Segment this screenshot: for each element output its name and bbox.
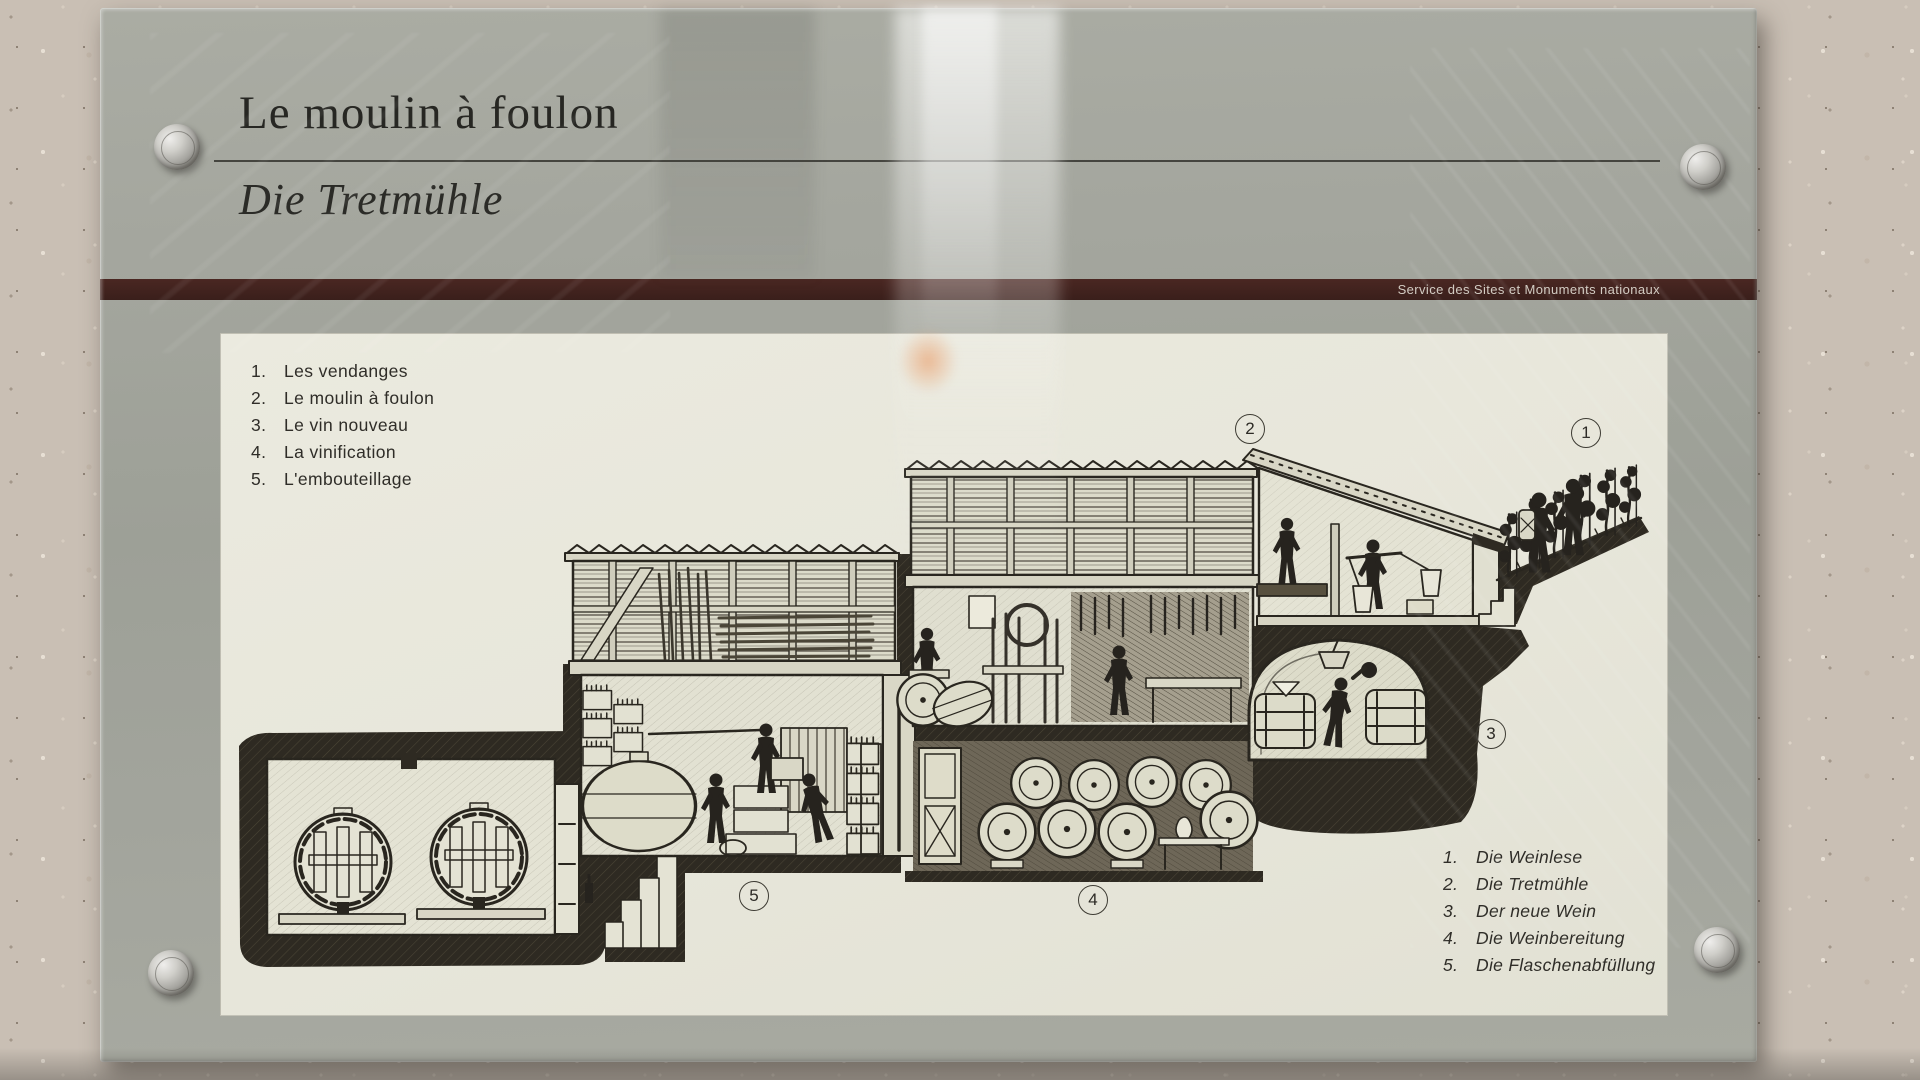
diagram-marker-5: 5	[739, 881, 769, 911]
bottling-building	[565, 545, 915, 856]
standoff-bolt-bottom-right	[1694, 927, 1740, 973]
diagram-marker-2: 2	[1235, 414, 1265, 444]
legend-item: 1.Les vendanges	[251, 360, 434, 382]
legend-item: 5.L'embouteillage	[251, 468, 434, 490]
legend-item: 2.Le moulin à foulon	[251, 387, 434, 409]
legend-item: 1.Die Weinlese	[1443, 846, 1655, 868]
legend-item: 2.Die Tretmühle	[1443, 873, 1655, 895]
legend-french: 1.Les vendanges 2.Le moulin à foulon 3.L…	[251, 360, 434, 495]
issuer-caption: Service des Sites et Monuments nationaux	[1398, 282, 1757, 297]
central-building	[897, 461, 1259, 871]
diagram-marker-3: 3	[1476, 719, 1506, 749]
diagram-marker-1: 1	[1571, 418, 1601, 448]
workshop	[897, 587, 1253, 734]
treading-mill	[1243, 449, 1509, 626]
glass-reflection-core	[922, 8, 997, 358]
title-divider-rule	[214, 160, 1660, 162]
standoff-bolt-bottom-left	[148, 950, 194, 996]
legend-item: 5.Die Flaschenabfüllung	[1443, 954, 1655, 976]
round-cask-cellar	[267, 753, 579, 935]
drying-loft	[911, 477, 1253, 575]
legend-item: 4.Die Weinbereitung	[1443, 927, 1655, 949]
legend-item: 4.La vinification	[251, 441, 434, 463]
standoff-bolt-top-right	[1680, 144, 1726, 190]
glass-reflection-dark-band	[660, 8, 815, 279]
plaque-title-french: Le moulin à foulon	[239, 86, 619, 140]
standoff-bolt-top-left	[154, 124, 200, 170]
legend-item: 3.Le vin nouveau	[251, 414, 434, 436]
legend-german: 1.Die Weinlese 2.Die Tretmühle 3.Der neu…	[1443, 846, 1655, 981]
glass-plaque: Le moulin à foulon Die Tretmühle Service…	[100, 8, 1757, 1062]
barrel-cellar	[913, 741, 1257, 871]
illustration-panel: 1 2 3 4 5 1.Les vendanges 2.Le moulin à …	[220, 333, 1668, 1016]
maroon-caption-bar: Service des Sites et Monuments nationaux	[100, 279, 1757, 300]
vaulted-cellar	[1249, 640, 1428, 760]
wall-shadow	[0, 1048, 1920, 1080]
plaque-title-german: Die Tretmühle	[239, 174, 503, 225]
legend-item: 3.Der neue Wein	[1443, 900, 1655, 922]
diagram-marker-4: 4	[1078, 885, 1108, 915]
